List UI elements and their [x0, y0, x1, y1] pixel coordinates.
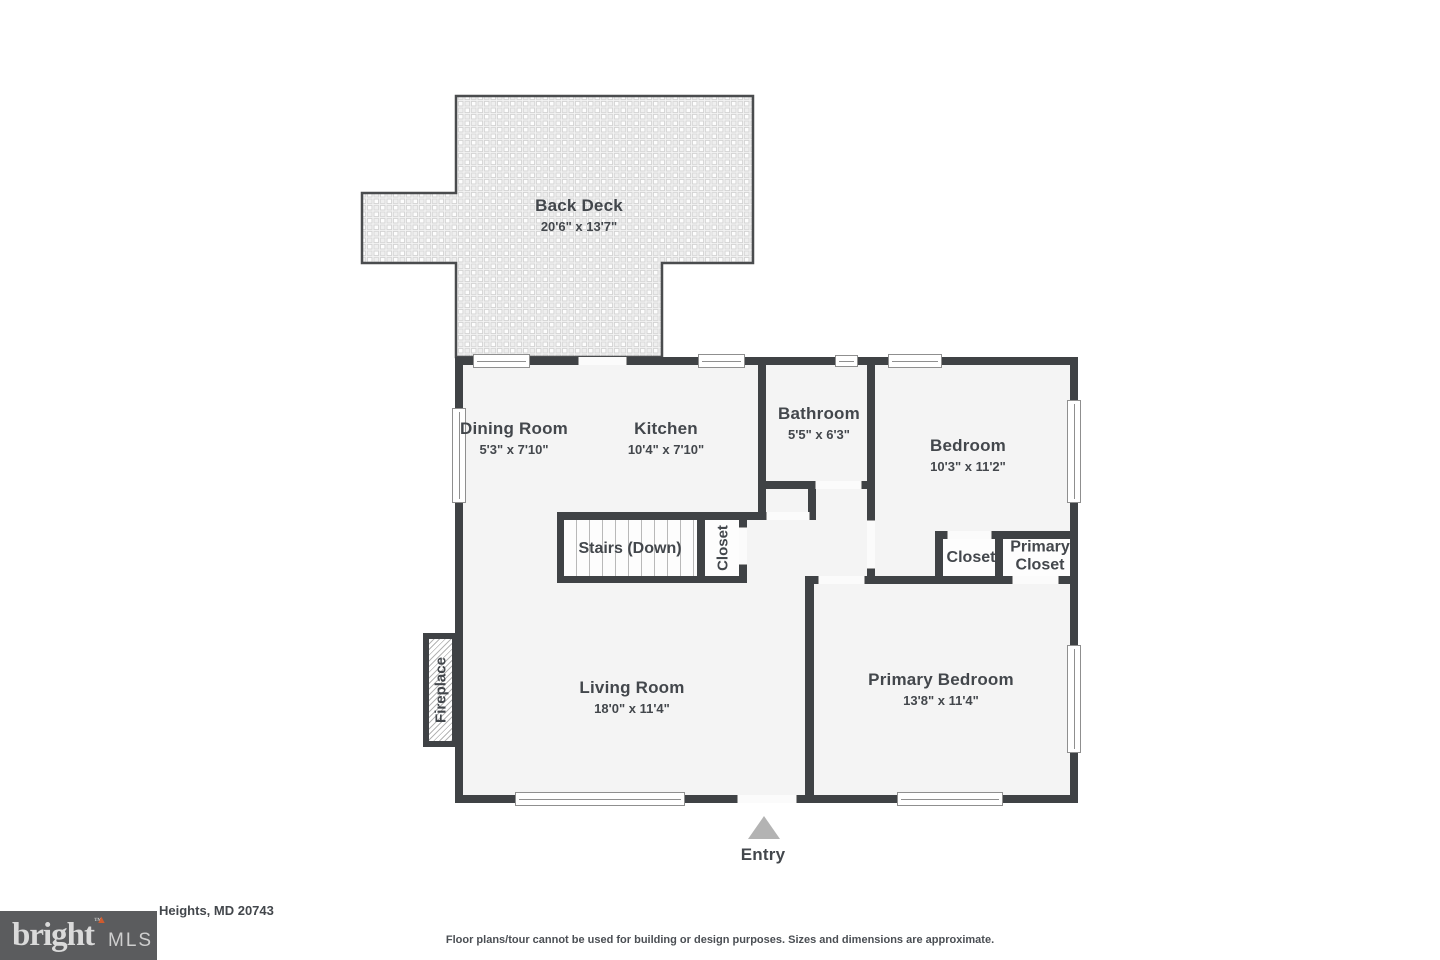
wall-exterior-top	[455, 357, 1078, 365]
disclaimer-text: Floor plans/tour cannot be used for buil…	[446, 934, 994, 946]
living-room-label: Living Room 18'0" x 11'4"	[579, 678, 684, 716]
stairs-label: Stairs (Down)	[578, 540, 681, 558]
primary-bedroom-door-opening	[818, 576, 865, 584]
deck-door-opening	[578, 357, 627, 365]
logo-brand-text: bright™ ▲	[12, 919, 101, 952]
wall-kitchen-bathroom	[758, 357, 766, 517]
bedroom-door-opening	[867, 520, 875, 569]
wall-closet-divider	[995, 531, 1003, 576]
bedroom-closet-label: Closet	[947, 549, 996, 567]
wall-living-primary	[805, 576, 814, 803]
dining-room-label: Dining Room 5'3" x 7'10"	[460, 419, 568, 457]
wall-stairs-bottom	[557, 576, 747, 583]
primary-bedroom-label: Primary Bedroom 13'8" x 11'4"	[868, 670, 1014, 708]
hall-closet-label: Closet	[715, 525, 732, 571]
entry-opening	[737, 795, 797, 803]
back-deck-label: Back Deck 20'6" x 13'7"	[535, 196, 623, 234]
logo-arrow-icon: ▲	[96, 915, 106, 926]
wall-stairs-left	[557, 512, 564, 583]
kitchen-label: Kitchen 10'4" x 7'10"	[628, 419, 704, 457]
bright-mls-logo: bright™ ▲ MLS	[0, 911, 157, 960]
bedroom-closet-door-opening	[947, 531, 992, 539]
primary-closet-door-opening	[1012, 576, 1059, 584]
wall-stairs-closet-divider	[697, 519, 705, 576]
window-bathroom-top	[835, 355, 858, 367]
bathroom-door-opening	[815, 481, 862, 489]
window-bedroom-top	[888, 354, 942, 368]
window-primary-right	[1067, 645, 1081, 753]
bathroom-label: Bathroom 5'5" x 6'3"	[778, 404, 860, 442]
window-dining-top	[473, 354, 530, 368]
wall-stairs-top	[557, 512, 766, 520]
primary-closet-label: Primary Closet	[1010, 539, 1070, 576]
window-living-bottom	[515, 792, 685, 806]
floor-plan-page: Back Deck 20'6" x 13'7" Dining Room 5'3"…	[0, 0, 1440, 960]
window-primary-bottom	[897, 792, 1003, 806]
entry-arrow-icon	[748, 816, 780, 839]
hall-closet-door-opening	[739, 527, 747, 565]
window-kitchen-top	[698, 354, 745, 368]
entry-label: Entry	[741, 845, 785, 865]
logo-mls-text: MLS	[108, 930, 153, 952]
listing-address: Heights, MD 20743	[159, 903, 274, 918]
kitchen-hall-door-opening	[766, 512, 810, 520]
bedroom-label: Bedroom 10'3" x 11'2"	[930, 436, 1006, 474]
window-bedroom-right	[1067, 400, 1081, 503]
fireplace-label: Fireplace	[433, 657, 450, 723]
